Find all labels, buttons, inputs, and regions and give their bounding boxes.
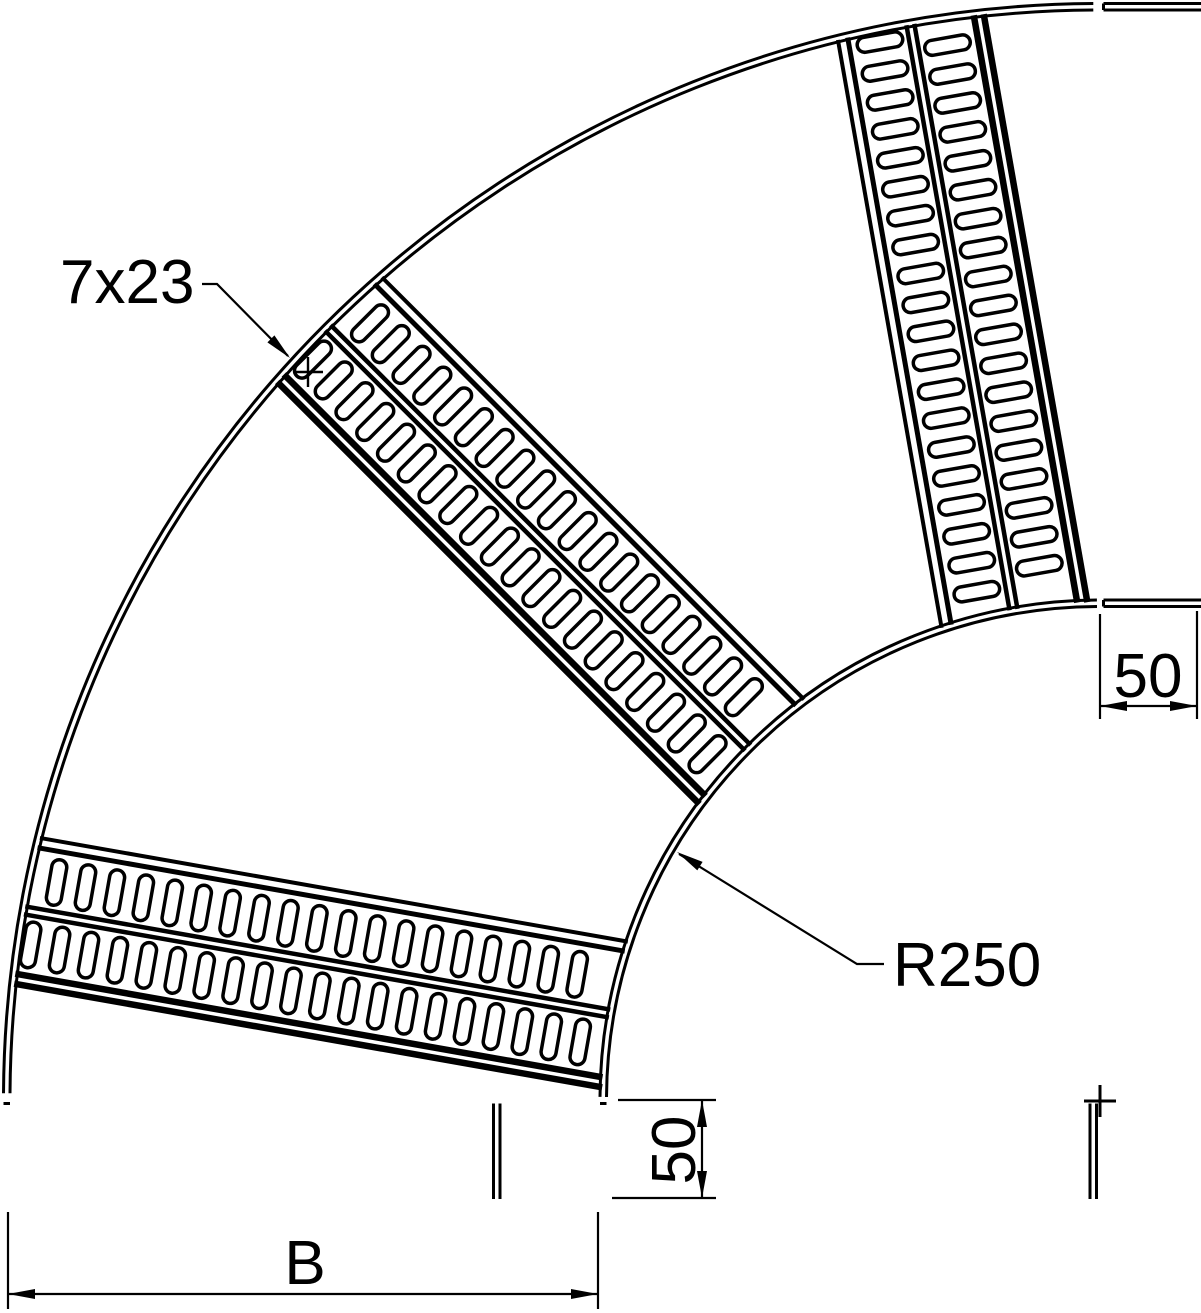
rung-slot [511,1008,534,1056]
rung-slot [306,904,329,952]
bottom-end-length-label: 50 [640,1116,709,1185]
rung-slot [222,957,245,1005]
leader-radius [677,852,884,964]
rung-slot [959,236,1007,259]
rung-slot [566,950,589,998]
rung-slot [1005,497,1053,520]
slot-size-label: 7x23 [60,248,194,317]
rung-slot [479,935,502,983]
rung-slot [938,494,986,517]
rung-slot [948,551,996,574]
rung-slot [569,1018,592,1066]
rung-slot [309,972,332,1020]
rung-slot [943,522,991,545]
rung-slot [450,930,473,978]
rung-slot [424,992,447,1040]
rung-slot [907,320,955,343]
rung-slot [132,874,155,922]
rung-slot [995,439,1043,462]
rung-slot [537,945,560,993]
arrowhead [8,1289,35,1299]
rung-edge-line [325,331,745,751]
rung-slot [933,465,981,488]
rung-slot [876,146,924,169]
rung-slot [251,962,274,1010]
annotations [8,284,1197,1309]
rung-slot [964,265,1012,288]
rung-slot [975,323,1023,346]
rung-slot [453,998,476,1046]
rung-slot [1000,468,1048,491]
rung-slot [939,121,987,144]
rung-slot [392,920,415,968]
rung-slot [934,92,982,115]
drawing-layer [4,4,1201,1310]
rung-slot [508,940,531,988]
rung-slot [280,967,303,1015]
leader-line [679,854,884,964]
rung-slot [1015,554,1063,577]
rung-slot [74,864,97,912]
rung-edge-line [38,848,625,952]
rung-slot [990,410,1038,433]
rung-slot [917,378,965,401]
top-end-length-label: 50 [1114,642,1183,711]
rung-slot [540,1013,563,1061]
rung-slot [944,149,992,172]
rung-slot [927,436,975,459]
rung-slot [45,859,68,907]
rung-slot [912,349,960,372]
width-label: B [284,1229,325,1298]
rung-slot [1010,525,1058,548]
rung-slot [248,894,271,942]
rung-edge-line [848,38,952,625]
leader-slot-size [202,284,290,358]
rung-slot [969,294,1017,317]
cable-ladder-bend-drawing: 7x23 R250 50 50 B [0,0,1201,1313]
rung-slot [193,952,216,1000]
rung-slot [924,34,972,57]
rung-slot [395,987,418,1035]
rung-slot [980,352,1028,375]
rung-slot [871,117,919,140]
rung-2 [276,276,805,805]
rung-1 [12,838,628,1088]
rung-slot [953,580,1001,603]
rung-slot [164,947,187,995]
rung-slot [897,262,945,285]
arrowhead [571,1289,598,1299]
rung-slot [48,926,71,974]
rung-slot [856,31,904,54]
rung-slot [902,291,950,314]
rung-edge-line [331,325,751,745]
radius-label: R250 [893,931,1041,1000]
rung-slot [954,207,1002,230]
rung-slot [219,889,242,937]
rung-slot [949,178,997,201]
rung-slot [366,982,389,1030]
rung-slot [161,879,184,927]
rung-slot [882,175,930,198]
rung-slot [887,204,935,227]
side-rails [4,4,1201,1200]
rung-slot [866,89,914,112]
rung-slot [277,899,300,947]
rung-slot [363,915,386,963]
arrowhead [677,852,703,870]
rung-slot [135,941,158,989]
rung-slot [334,910,357,958]
rung-3 [838,12,1088,628]
rung-slot [892,233,940,256]
rung-slot [77,931,100,979]
rung-slot [190,884,213,932]
rung-slot [106,936,129,984]
rung-slot [421,925,444,973]
rung-slot [929,63,977,86]
rail-arc [607,607,1098,1098]
rung-slot [861,60,909,83]
rung-slot [103,869,126,917]
rung-slot [985,381,1033,404]
technical-drawing-page: 7x23 R250 50 50 B [0,0,1201,1313]
rung-slot [482,1003,505,1051]
rung-slot [922,407,970,430]
rung-slot [337,977,360,1025]
